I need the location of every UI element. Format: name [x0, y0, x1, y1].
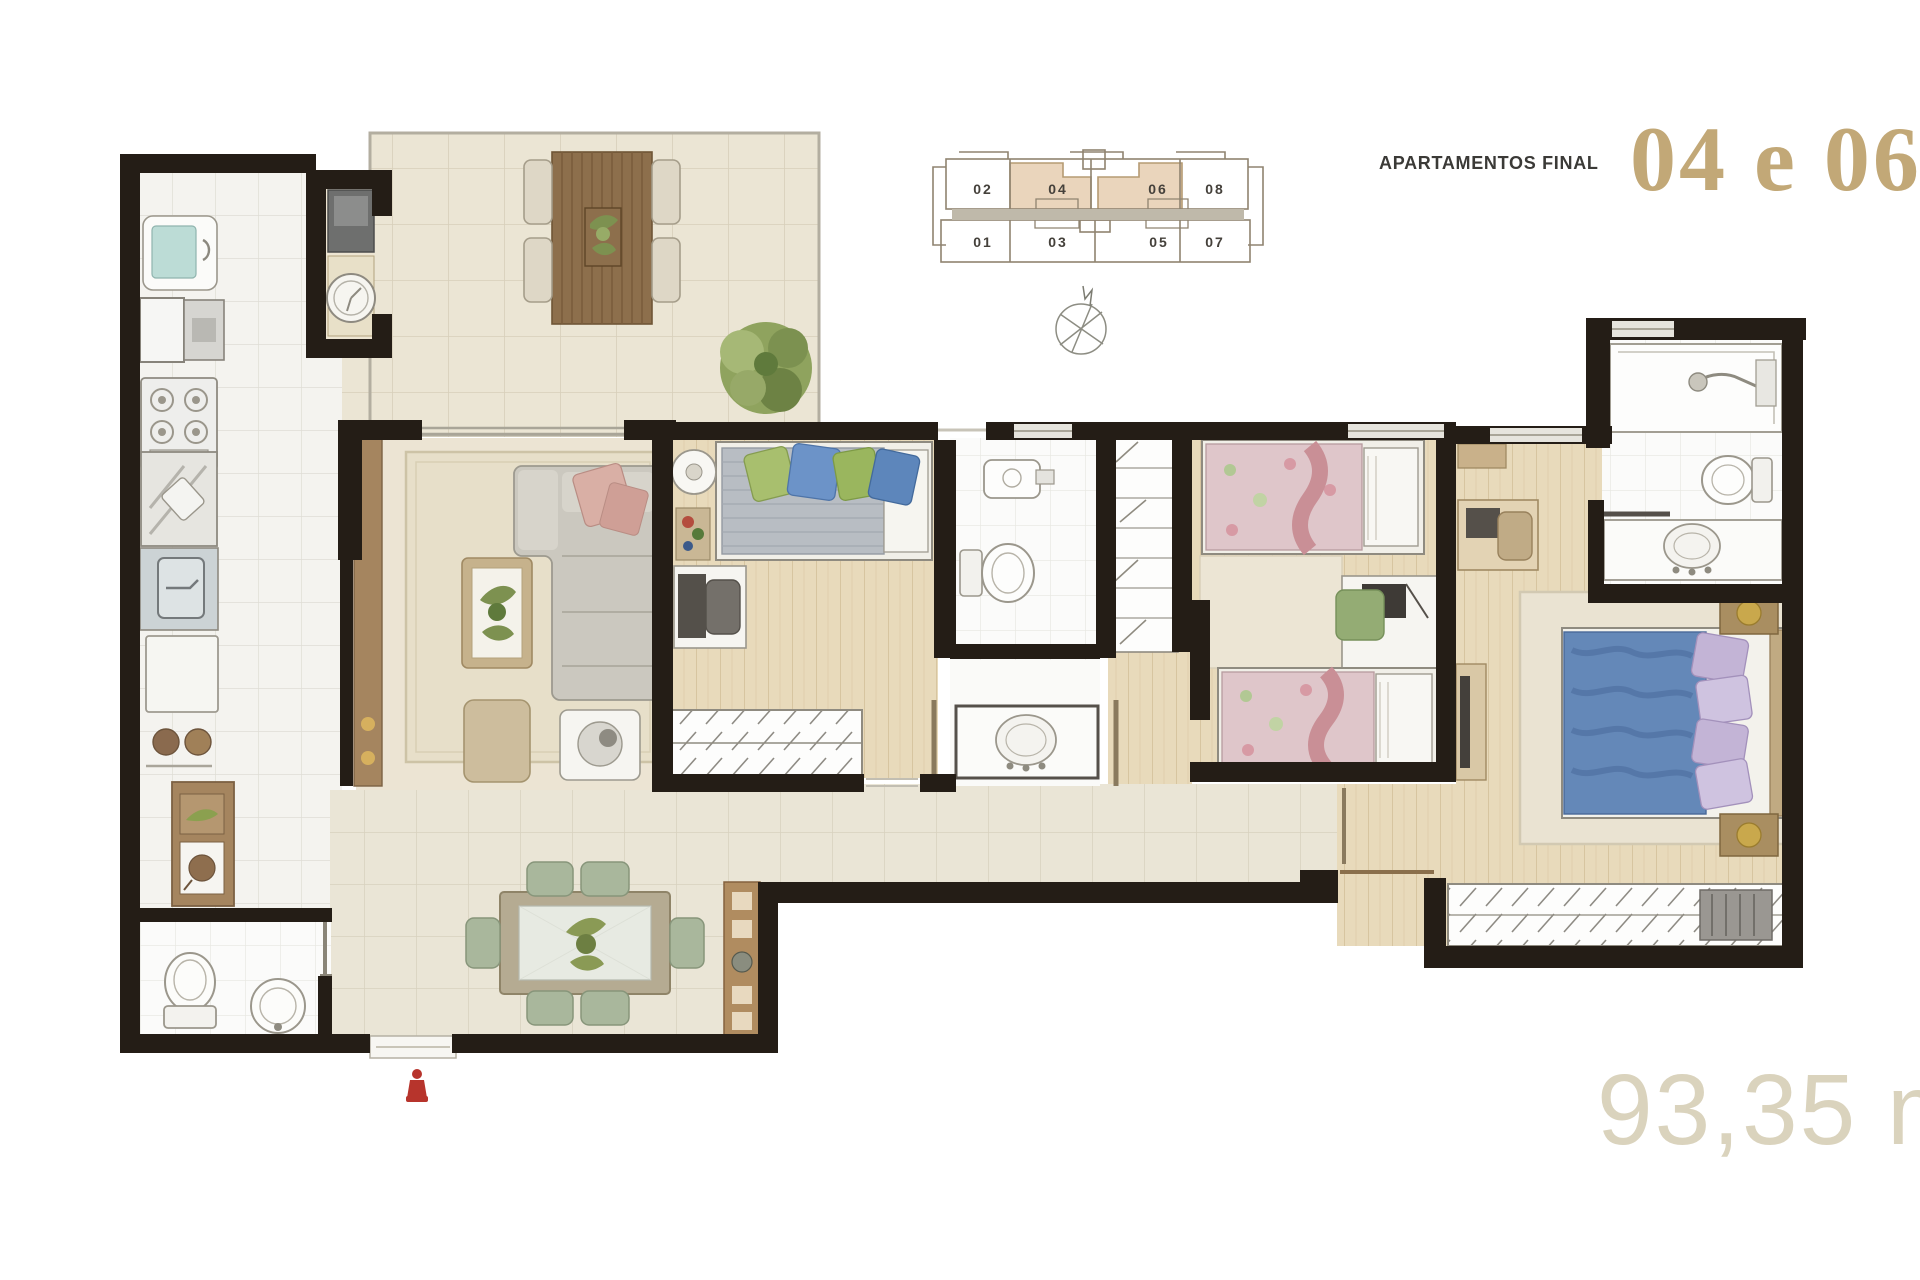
svg-text:02: 02 — [973, 181, 993, 197]
svg-text:05: 05 — [1149, 234, 1169, 250]
svg-text:08: 08 — [1205, 181, 1225, 197]
svg-text:04: 04 — [1048, 181, 1068, 197]
svg-text:07: 07 — [1205, 234, 1225, 250]
svg-text:APARTAMENTOS FINAL: APARTAMENTOS FINAL — [1379, 153, 1599, 173]
svg-text:01: 01 — [973, 234, 993, 250]
svg-text:06: 06 — [1148, 181, 1168, 197]
svg-text:03: 03 — [1048, 234, 1068, 250]
svg-text:93,35 m2: 93,35 m2 — [1597, 1054, 1920, 1166]
svg-text:04 e 06: 04 e 06 — [1630, 108, 1920, 210]
